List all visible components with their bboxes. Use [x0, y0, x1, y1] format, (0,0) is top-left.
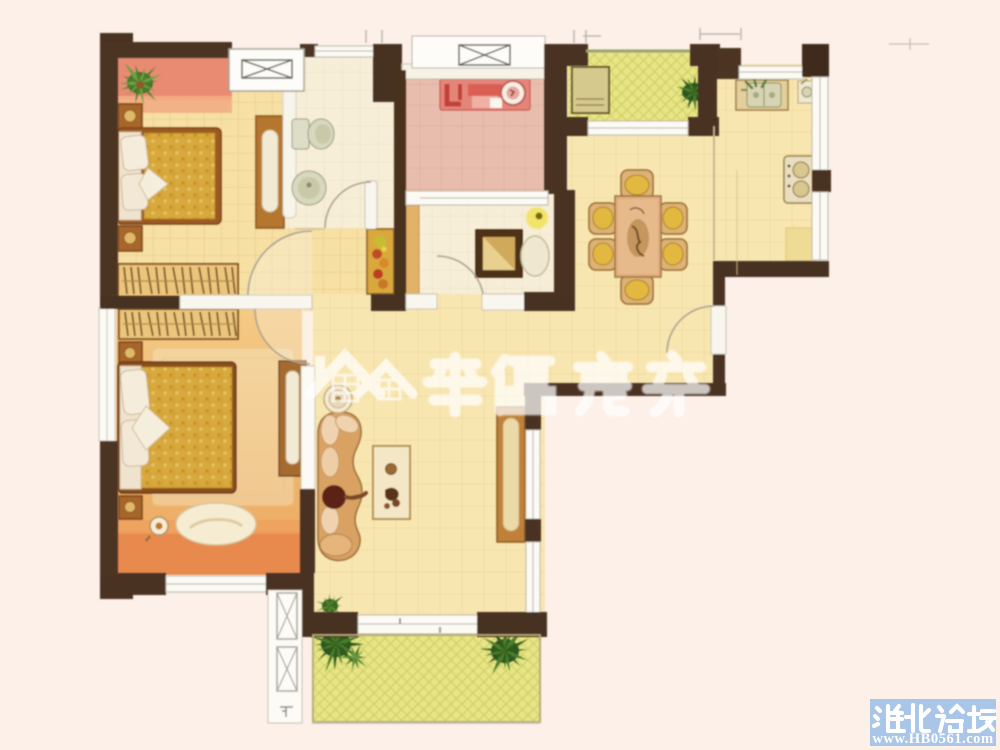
svg-text:www.HB0561.com: www.HB0561.com — [872, 731, 993, 747]
